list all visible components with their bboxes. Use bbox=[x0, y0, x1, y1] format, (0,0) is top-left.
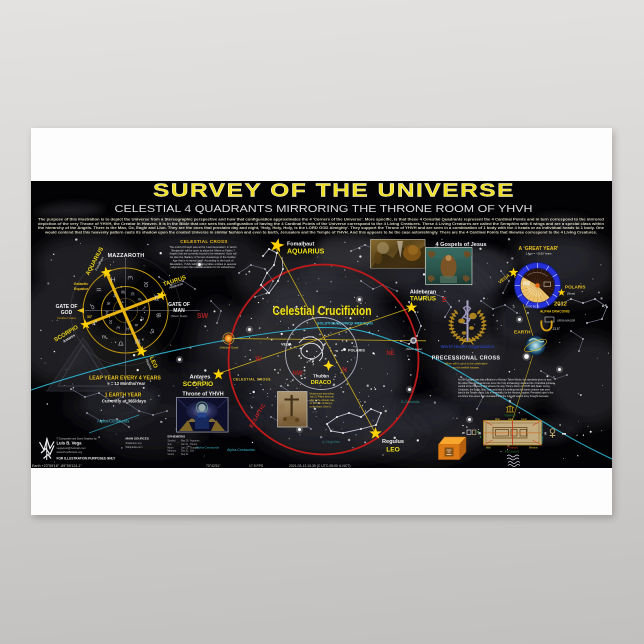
svg-text:1 Age = ~2160 Years: 1 Age = ~2160 Years bbox=[526, 252, 553, 256]
svg-text:Alpha-Centaurids: Alpha-Centaurids bbox=[97, 419, 129, 424]
svg-text:Alpha-Centaurids: Alpha-Centaurids bbox=[196, 445, 220, 449]
svg-text:Galactic: Galactic bbox=[74, 282, 89, 286]
svg-text:(Silver Gate): (Silver Gate) bbox=[171, 314, 188, 318]
svg-text:be also the 'Galaxy' of human: be also the 'Galaxy' of human clustering… bbox=[170, 255, 236, 259]
svg-text:CELESTIAL CROSS: CELESTIAL CROSS bbox=[180, 239, 228, 244]
svg-text:NW: NW bbox=[293, 371, 303, 377]
svg-text:(Now): (Now) bbox=[567, 292, 575, 296]
svg-text:Temple Mount axis: Temple Mount axis bbox=[540, 421, 544, 443]
svg-text:N: N bbox=[342, 367, 347, 374]
svg-text:EARTH: EARTH bbox=[514, 330, 531, 336]
svg-text:Stellarium.org: Stellarium.org bbox=[126, 441, 143, 445]
svg-text:Thuban: Thuban bbox=[313, 374, 329, 379]
svg-text:POLARIS: POLARIS bbox=[348, 349, 365, 353]
svg-text:Alpha-Centaurids: Alpha-Centaurids bbox=[227, 448, 255, 452]
svg-text:23.5°: 23.5° bbox=[553, 327, 561, 331]
svg-text:URSA MAJOR: URSA MAJOR bbox=[557, 319, 575, 323]
svg-text:(Silver Gate): (Silver Gate) bbox=[406, 347, 423, 351]
svg-text:Fomalhaut: Fomalhaut bbox=[287, 242, 314, 248]
svg-text:FOR ILLUSTRATION PURPOSES ONLY: FOR ILLUSTRATION PURPOSES ONLY bbox=[57, 457, 117, 461]
svg-text:Leo: Leo bbox=[190, 450, 195, 453]
svg-text:70°42'51": 70°42'51" bbox=[206, 464, 221, 468]
svg-text:MAZZAROTH: MAZZAROTH bbox=[108, 253, 145, 259]
svg-text:E: E bbox=[545, 432, 547, 436]
svg-text:Antares: Antares bbox=[190, 375, 211, 381]
svg-text:CELESTIAL CROSS: CELESTIAL CROSS bbox=[233, 378, 271, 382]
svg-text:Throne of YHVH: Throne of YHVH bbox=[182, 392, 223, 398]
svg-text:TAURUS: TAURUS bbox=[410, 296, 437, 303]
svg-text:2012: 2012 bbox=[554, 302, 567, 308]
svg-text:Regulus: Regulus bbox=[382, 439, 404, 445]
svg-text:SCORPIO: SCORPIO bbox=[183, 381, 213, 388]
svg-text:17.9 FPS: 17.9 FPS bbox=[249, 464, 264, 468]
svg-text:era future time amen from Jeru: era future time amen from Jerusalem unti… bbox=[458, 395, 549, 398]
svg-text:NE: NE bbox=[386, 351, 394, 357]
svg-text:Venus: Venus bbox=[168, 453, 175, 456]
svg-text:judgment upon the Last Generat: judgment upon the Last Generation for it… bbox=[170, 265, 236, 269]
svg-text:SURVEY OF THE UNIVERSE: SURVEY OF THE UNIVERSE bbox=[153, 181, 515, 201]
svg-text:(Golden Gate): (Golden Gate) bbox=[57, 316, 76, 320]
svg-text:Earth +23°59'16" -89°59'124.: Earth +23°59'16" -89°59'124.1" bbox=[32, 464, 82, 468]
svg-text:2021-03-13 10:35 (C UTC-05:00: 2021-03-13 10:35 (C UTC-05:00 IL NCT) bbox=[289, 464, 351, 468]
svg-text:(5000 BC?): (5000 BC?) bbox=[525, 305, 539, 309]
svg-text:Luis B. Vega: Luis B. Vega bbox=[57, 441, 83, 446]
svg-text:Sep 21: Sep 21 bbox=[181, 453, 189, 456]
svg-text:w: w bbox=[461, 431, 465, 435]
svg-text:at the sham, Even 3.: at the sham, Even 3. bbox=[310, 405, 332, 408]
svg-text:MAIN SOURCES: MAIN SOURCES bbox=[126, 437, 149, 441]
svg-text:Wall: Wall bbox=[486, 447, 491, 450]
svg-text:33°: 33° bbox=[87, 315, 93, 319]
svg-text:www.PostScripts.org: www.PostScripts.org bbox=[57, 450, 83, 454]
svg-text:W: W bbox=[255, 356, 262, 363]
svg-text:POLARIS: POLARIS bbox=[565, 285, 585, 290]
svg-text:H2O pool S: H2O pool S bbox=[505, 450, 520, 454]
svg-text:Age that is to repeat itself.: Age that is to repeat itself. According … bbox=[173, 258, 234, 262]
svg-text:(Hidden Gate): (Hidden Gate) bbox=[220, 346, 239, 350]
svg-text:as the twelfth heaven: as the twelfth heaven bbox=[453, 365, 480, 369]
svg-text:'Benjamite' will be open to al: 'Benjamite' will be open to allow the 'M… bbox=[171, 248, 235, 252]
svg-text:ALPHA DRACONIS: ALPHA DRACONIS bbox=[540, 310, 571, 314]
svg-text:E: E bbox=[442, 297, 447, 304]
svg-text:SW: SW bbox=[197, 313, 209, 320]
svg-text:DRACO: DRACO bbox=[311, 380, 332, 386]
svg-text:AQUARIUS: AQUARIUS bbox=[287, 249, 325, 256]
svg-text:= 12 Months/Year: = 12 Months/Year bbox=[111, 381, 146, 386]
svg-text:Currently at 365/days: Currently at 365/days bbox=[102, 399, 147, 404]
svg-text:Celestial Crucifixion: Celestial Crucifixion bbox=[273, 303, 372, 318]
svg-text:LEO: LEO bbox=[386, 447, 400, 454]
svg-text:Equator: Equator bbox=[74, 287, 89, 291]
svg-text:Wikipedia.com: Wikipedia.com bbox=[126, 445, 143, 449]
svg-text:CELESTIAL 4 QUADRANTS MIRRORIN: CELESTIAL 4 QUADRANTS MIRRORING THE THRO… bbox=[115, 204, 533, 215]
svg-text:would contend that this heaven: would contend that this heavenly pattern… bbox=[44, 230, 597, 234]
svg-text:VEGA: VEGA bbox=[281, 343, 292, 347]
svg-text:η-Virginids: η-Virginids bbox=[322, 440, 340, 444]
svg-text:Western: Western bbox=[529, 447, 539, 450]
svg-text:World Health Organization: World Health Organization bbox=[441, 344, 495, 349]
svg-text:EPHEMERIS: EPHEMERIS bbox=[168, 435, 186, 439]
svg-text:δ-Cancrids: δ-Cancrids bbox=[401, 400, 419, 404]
svg-text:4 Gospels of Jesus: 4 Gospels of Jesus bbox=[436, 242, 487, 248]
